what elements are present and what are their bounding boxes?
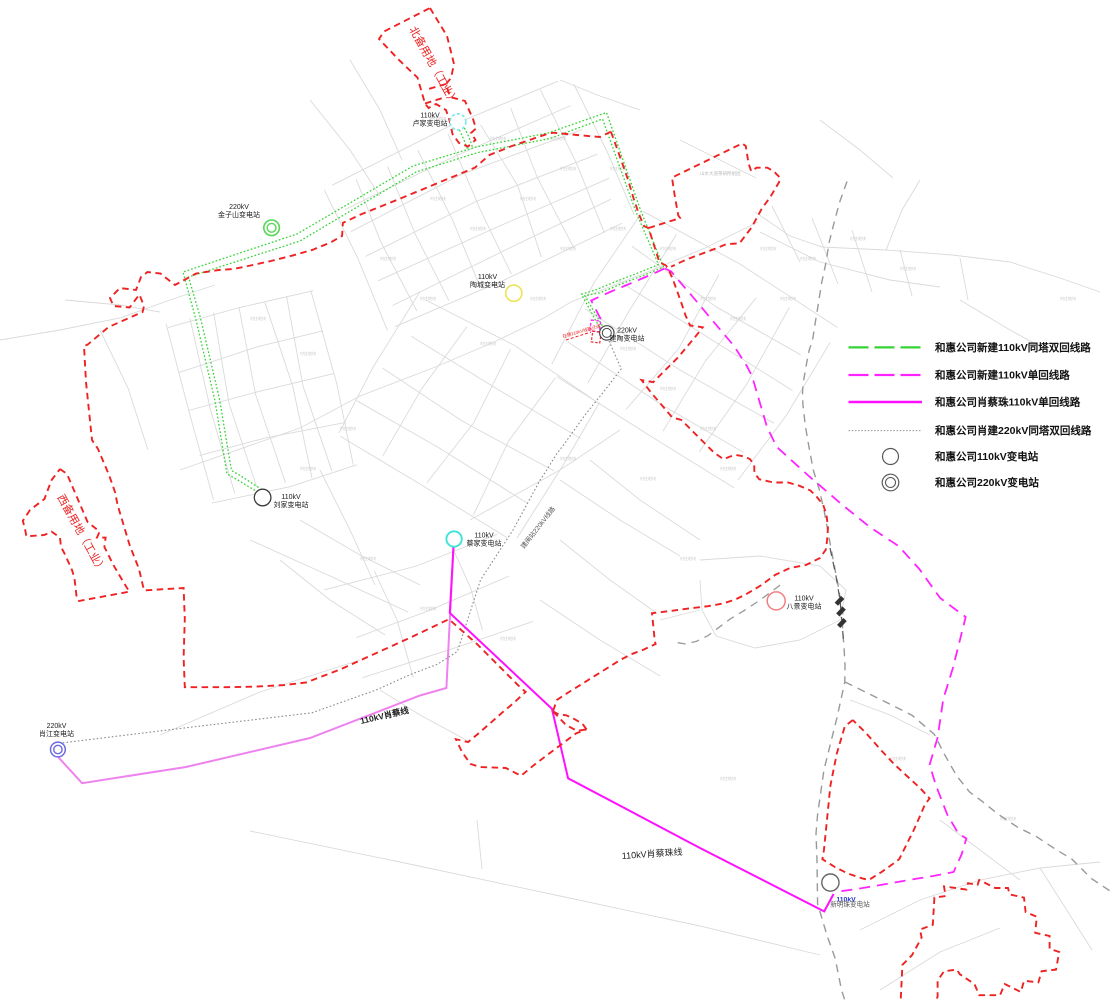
svg-text:和惠公司新建110kV单回线路: 和惠公司新建110kV单回线路 [934, 369, 1070, 382]
svg-text:村庄地块: 村庄地块 [1060, 295, 1076, 301]
svg-text:110kV: 110kV [794, 596, 814, 603]
svg-text:村庄地块: 村庄地块 [420, 605, 436, 611]
svg-text:村庄地块: 村庄地块 [560, 455, 576, 461]
svg-text:村庄地块: 村庄地块 [420, 295, 436, 301]
svg-text:220kV: 220kV [229, 204, 249, 211]
svg-text:村庄地块: 村庄地块 [890, 755, 906, 761]
svg-text:村庄地块: 村庄地块 [760, 245, 776, 251]
svg-text:陶城变电站: 陶城变电站 [470, 280, 505, 289]
svg-text:村庄地块: 村庄地块 [340, 425, 356, 431]
svg-text:110kV: 110kV [474, 533, 494, 540]
svg-text:八景变电站: 八景变电站 [787, 602, 822, 611]
svg-text:村庄地块: 村庄地块 [480, 340, 496, 346]
svg-text:村庄地块: 村庄地块 [300, 465, 316, 471]
svg-text:村庄地块: 村庄地块 [530, 295, 546, 301]
svg-text:村庄地块: 村庄地块 [680, 555, 696, 561]
svg-text:金子山变电站: 金子山变电站 [218, 210, 260, 219]
svg-text:220kV: 220kV [47, 723, 67, 730]
svg-text:村庄地块: 村庄地块 [730, 315, 746, 321]
svg-text:新明珠变电站: 新明珠变电站 [830, 900, 870, 909]
svg-text:村庄地块: 村庄地块 [900, 265, 916, 271]
svg-text:村庄地块: 村庄地块 [660, 385, 676, 391]
svg-text:和惠公司肖建220kV同塔双回线路: 和惠公司肖建220kV同塔双回线路 [934, 424, 1092, 437]
svg-text:村庄地块: 村庄地块 [700, 425, 716, 431]
svg-text:建陶变电站: 建陶变电站 [610, 334, 645, 343]
svg-text:村庄地块: 村庄地块 [250, 315, 266, 321]
svg-text:村庄地块: 村庄地块 [850, 235, 866, 241]
svg-text:村庄地块: 村庄地块 [560, 165, 576, 171]
svg-text:村庄地块: 村庄地块 [1000, 815, 1016, 821]
svg-text:和惠公司110kV变电站: 和惠公司110kV变电站 [934, 450, 1039, 463]
svg-text:220kV: 220kV [617, 328, 637, 335]
svg-text:村庄地块: 村庄地块 [380, 255, 396, 261]
svg-text:和惠公司220kV变电站: 和惠公司220kV变电站 [934, 476, 1039, 489]
svg-text:卢家变电站: 卢家变电站 [413, 119, 448, 128]
svg-text:刘家变电站: 刘家变电站 [274, 500, 309, 509]
svg-text:村庄地块: 村庄地块 [470, 225, 486, 231]
svg-text:110kV: 110kV [420, 113, 440, 120]
svg-text:村庄地块: 村庄地块 [560, 245, 576, 251]
svg-text:村庄地块: 村庄地块 [800, 255, 816, 261]
svg-text:山水大道茶研所组团: 山水大道茶研所组团 [700, 170, 741, 177]
svg-text:村庄地块: 村庄地块 [700, 295, 716, 301]
svg-text:村庄地块: 村庄地块 [780, 295, 796, 301]
svg-text:蔡家变电站: 蔡家变电站 [467, 539, 502, 548]
svg-text:村庄地块: 村庄地块 [720, 775, 736, 781]
svg-text:村庄地块: 村庄地块 [500, 635, 516, 641]
svg-text:村庄地块: 村庄地块 [430, 195, 446, 201]
svg-text:和惠公司新建110kV同塔双回线路: 和惠公司新建110kV同塔双回线路 [934, 341, 1091, 354]
svg-text:村庄地块: 村庄地块 [490, 135, 506, 141]
svg-text:肖江变电站: 肖江变电站 [39, 729, 74, 738]
svg-text:和惠公司肖蔡珠110kV单回线路: 和惠公司肖蔡珠110kV单回线路 [934, 396, 1081, 409]
svg-text:村庄地块: 村庄地块 [360, 555, 376, 561]
svg-text:村庄地块: 村庄地块 [610, 225, 626, 231]
svg-text:村庄地块: 村庄地块 [620, 345, 636, 351]
svg-text:110kV: 110kV [281, 494, 301, 501]
svg-text:村庄地块: 村庄地块 [300, 350, 316, 356]
svg-text:村庄地块: 村庄地块 [660, 245, 676, 251]
svg-text:村庄地块: 村庄地块 [520, 195, 536, 201]
svg-text:村庄地块: 村庄地块 [640, 475, 656, 481]
svg-text:110kV: 110kV [478, 274, 498, 281]
svg-text:村庄地块: 村庄地块 [720, 465, 736, 471]
